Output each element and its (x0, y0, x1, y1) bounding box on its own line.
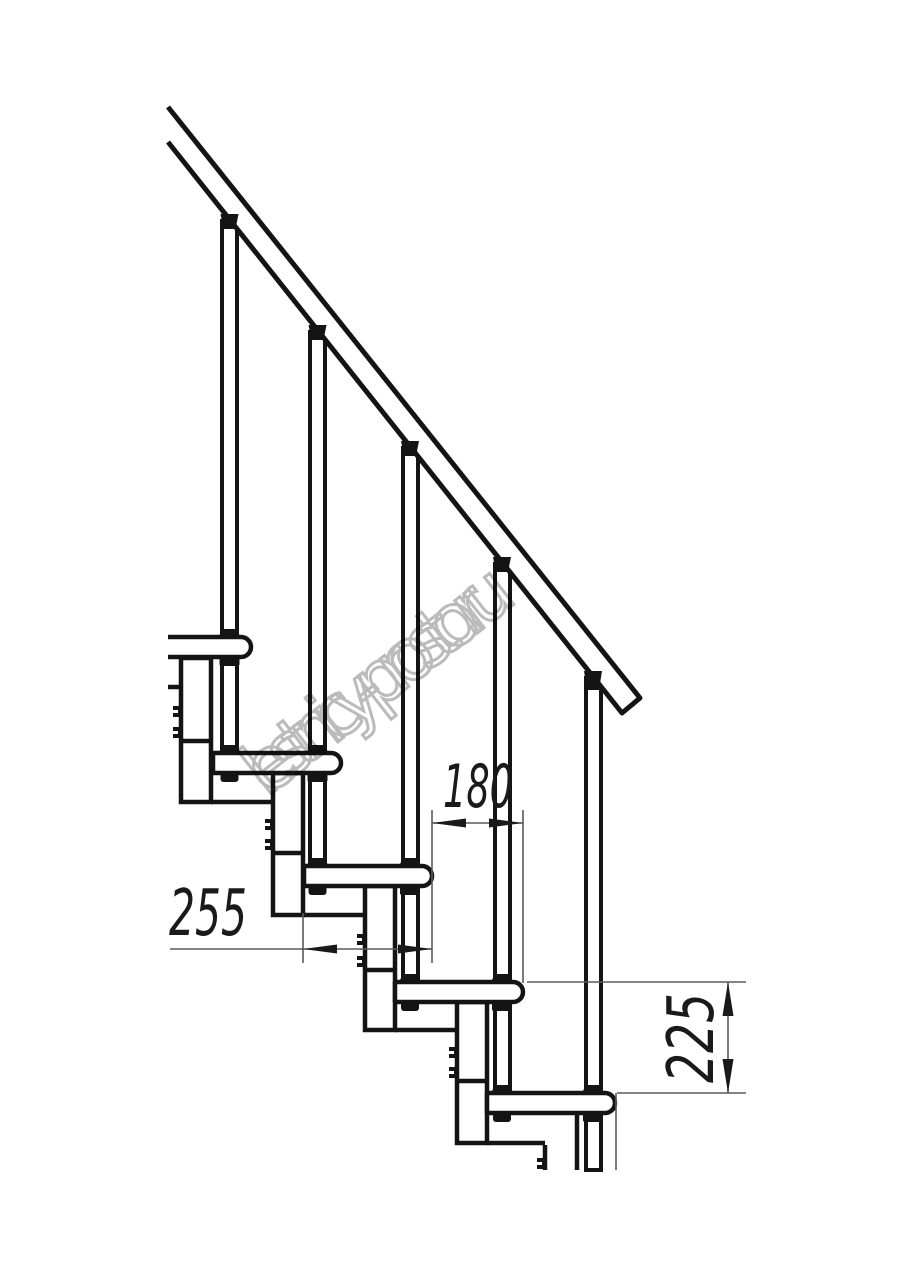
tread-1 (168, 637, 251, 657)
arrow-left-icon (303, 945, 337, 954)
tread-5 (487, 1093, 615, 1113)
staircase-drawing-svg: 180 255 225 lestnicy-prosto.ru (0, 0, 914, 1280)
stringer-module (365, 886, 395, 1030)
bolt-icon (265, 819, 273, 830)
bolt-icon (173, 706, 181, 717)
bolt-icon (357, 956, 365, 967)
stringer-module (457, 1002, 487, 1143)
bolt-icon (537, 1158, 545, 1169)
bolt-icon (449, 1067, 457, 1078)
drawing-canvas: 180 255 225 lestnicy-prosto.ru (0, 0, 914, 1280)
dimension-label-255: 255 (169, 877, 247, 951)
baluster (222, 221, 237, 637)
rail-fitting (493, 557, 511, 572)
stringer-module (181, 658, 211, 802)
spacer-rod (495, 1002, 510, 1093)
bolt-icon (173, 727, 181, 738)
spacer-rod (310, 773, 325, 866)
bolt-icon (357, 934, 365, 945)
spacer-rod (403, 886, 418, 982)
dimension-label-225: 225 (655, 993, 729, 1083)
bolt-icon (449, 1047, 457, 1058)
rail-fitting (309, 325, 327, 340)
baluster (586, 678, 601, 1093)
bolt-icon (265, 839, 273, 850)
dimension-label-180: 180 (443, 752, 513, 822)
rail-fitting (584, 671, 602, 690)
rail-fitting (221, 214, 239, 229)
rail-fitting (401, 441, 419, 456)
tread-4 (395, 982, 523, 1002)
tread-3 (304, 866, 432, 886)
